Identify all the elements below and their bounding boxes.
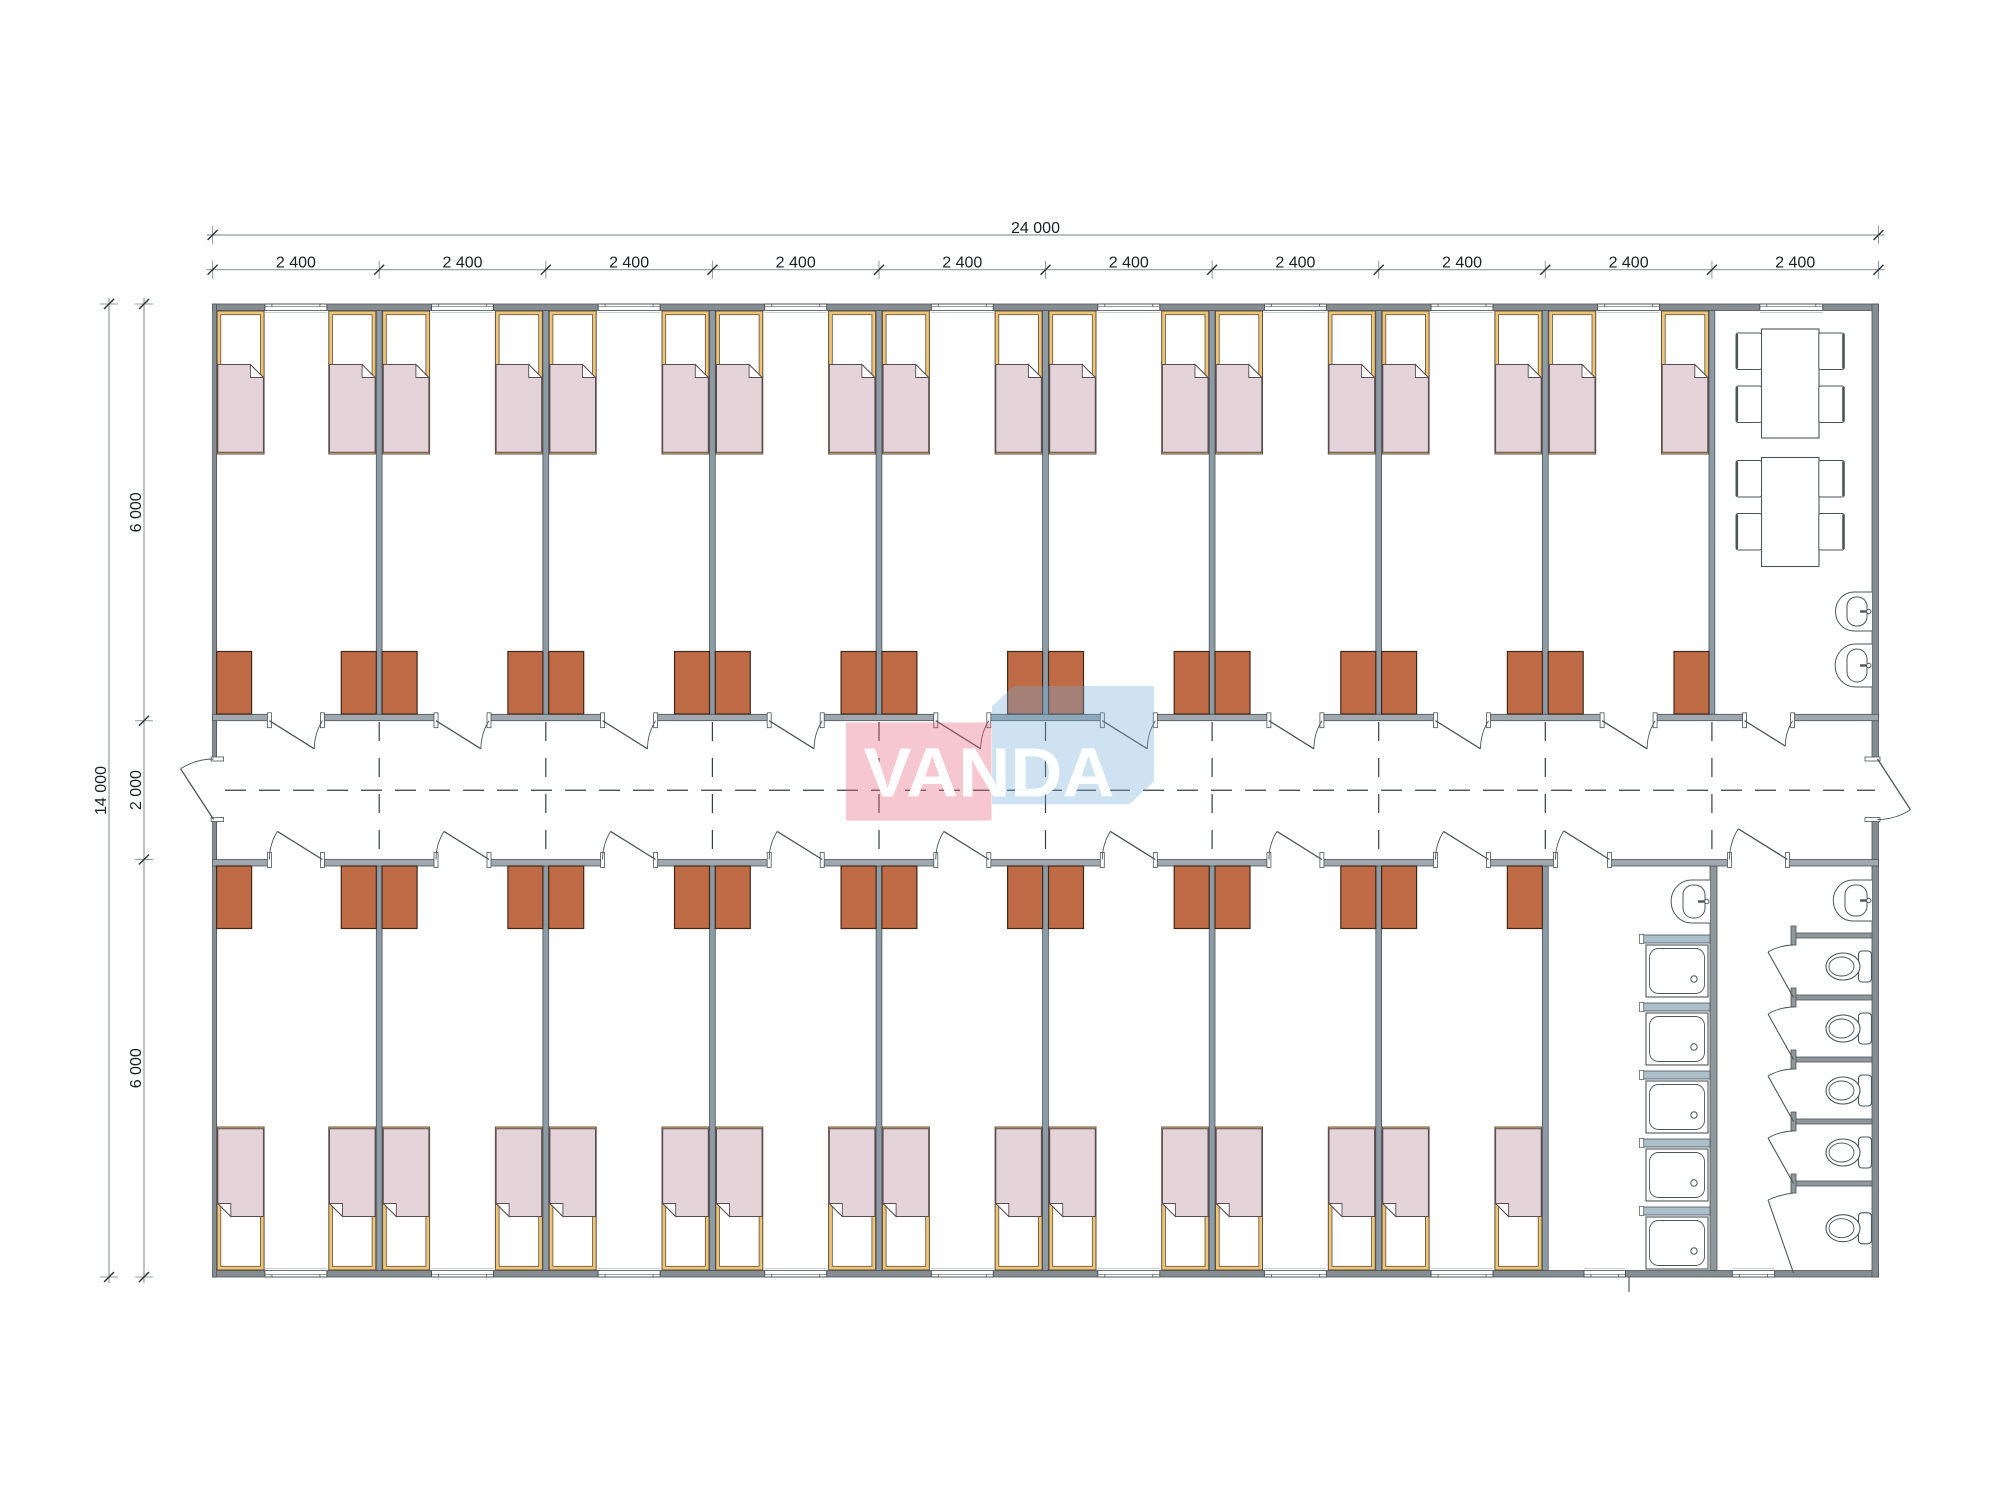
- svg-text:2 400: 2 400: [1775, 255, 1815, 272]
- svg-text:2 400: 2 400: [276, 255, 316, 272]
- svg-text:VANDA: VANDA: [864, 734, 1115, 812]
- svg-text:2 400: 2 400: [942, 255, 982, 272]
- svg-text:2 400: 2 400: [1442, 255, 1482, 272]
- svg-text:2 400: 2 400: [609, 255, 649, 272]
- svg-text:2 400: 2 400: [442, 255, 482, 272]
- svg-text:2 400: 2 400: [1609, 255, 1649, 272]
- svg-text:2 400: 2 400: [776, 255, 816, 272]
- svg-text:6 000: 6 000: [128, 1048, 145, 1088]
- svg-text:24 000: 24 000: [1011, 220, 1060, 237]
- svg-text:14 000: 14 000: [93, 766, 110, 815]
- svg-text:2 400: 2 400: [1275, 255, 1315, 272]
- svg-text:2 000: 2 000: [128, 770, 145, 810]
- svg-text:6 000: 6 000: [128, 492, 145, 532]
- svg-text:2 400: 2 400: [1109, 255, 1149, 272]
